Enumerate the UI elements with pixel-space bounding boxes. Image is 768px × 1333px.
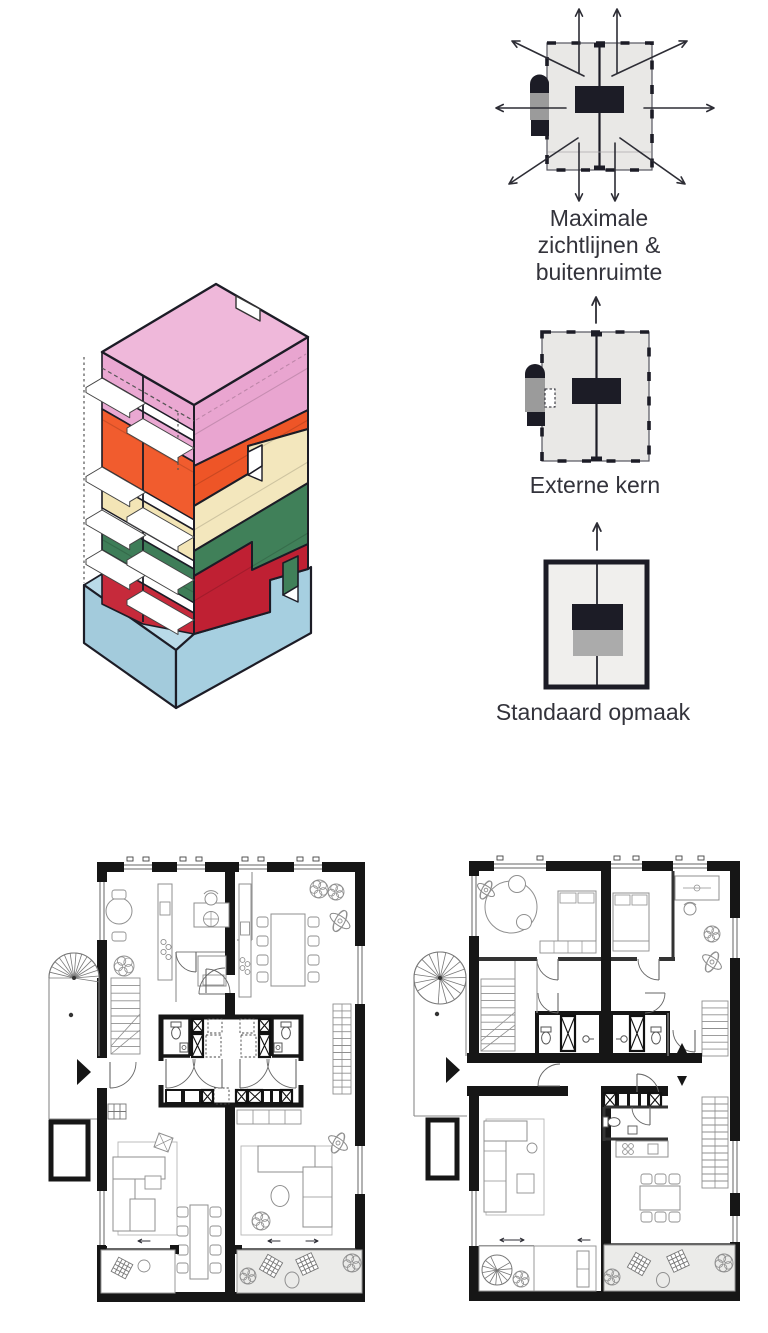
svg-text:buitenruimte: buitenruimte xyxy=(536,259,663,285)
svg-text:Externe kern: Externe kern xyxy=(530,472,660,498)
svg-text:Standaard opmaak: Standaard opmaak xyxy=(496,699,691,725)
svg-text:zichtlijnen &: zichtlijnen & xyxy=(538,232,661,258)
svg-text:Maximale: Maximale xyxy=(550,205,648,231)
